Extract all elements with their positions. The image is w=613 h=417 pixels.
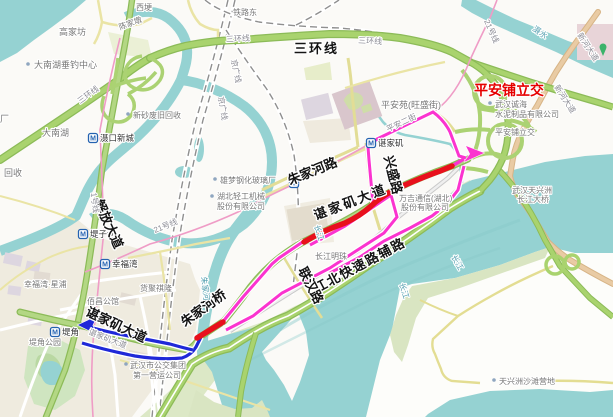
svg-text:高家坊: 高家坊 xyxy=(59,26,86,37)
svg-text:谌家矶: 谌家矶 xyxy=(378,138,404,148)
svg-text:湖北轻工机械: 湖北轻工机械 xyxy=(217,191,265,201)
svg-text:M: M xyxy=(102,262,108,269)
svg-text:大南湖垂钓中心: 大南湖垂钓中心 xyxy=(34,59,97,70)
svg-text:武汉市公交集团: 武汉市公交集团 xyxy=(130,360,186,370)
svg-text:幸福湾·星浦: 幸福湾·星浦 xyxy=(24,279,67,289)
svg-text:平安铺立交: 平安铺立交 xyxy=(495,127,535,137)
svg-text:股份有限公司: 股份有限公司 xyxy=(217,201,265,211)
svg-text:铁路东: 铁路东 xyxy=(233,7,257,17)
svg-text:万吉通信(湖北): 万吉通信(湖北) xyxy=(399,193,453,203)
svg-text:货聚祺隆: 货聚祺隆 xyxy=(140,283,172,293)
svg-text:M: M xyxy=(368,141,374,148)
svg-text:三环线: 三环线 xyxy=(358,35,382,46)
svg-text:新砂废旧回收: 新砂废旧回收 xyxy=(133,110,181,120)
svg-text:回收: 回收 xyxy=(4,167,22,178)
svg-text:西埂: 西埂 xyxy=(136,2,152,12)
svg-text:平安铺立交: 平安铺立交 xyxy=(474,82,544,98)
svg-text:长江明珠: 长江明珠 xyxy=(315,251,347,261)
svg-text:三环线: 三环线 xyxy=(294,41,339,56)
svg-text:厂: 厂 xyxy=(0,114,9,124)
svg-text:堤角公园: 堤角公园 xyxy=(29,337,61,347)
svg-text:水泥制品有限公司: 水泥制品有限公司 xyxy=(495,109,559,119)
svg-text:M: M xyxy=(52,330,58,337)
svg-text:第一营运公司: 第一营运公司 xyxy=(133,370,181,380)
svg-text:平安苑(旺盛街): 平安苑(旺盛街) xyxy=(381,99,441,110)
svg-text:股份有限公司: 股份有限公司 xyxy=(401,202,449,212)
svg-text:幸福湾: 幸福湾 xyxy=(112,259,138,269)
svg-text:佰昌公馆: 佰昌公馆 xyxy=(87,296,119,306)
svg-text:三环线: 三环线 xyxy=(226,33,250,44)
svg-text:雄梦钢化玻璃厂: 雄梦钢化玻璃厂 xyxy=(220,175,276,185)
svg-text:武汉天兴洲: 武汉天兴洲 xyxy=(512,185,552,195)
svg-text:滠口新城: 滠口新城 xyxy=(100,133,135,143)
svg-text:长江大桥: 长江大桥 xyxy=(517,194,549,204)
svg-text:堤角: 堤角 xyxy=(62,327,79,337)
svg-text:武汉诚海: 武汉诚海 xyxy=(495,99,527,109)
svg-text:M: M xyxy=(90,136,96,143)
svg-text:大南湖: 大南湖 xyxy=(42,127,69,138)
svg-text:天兴洲沙滩营地: 天兴洲沙滩营地 xyxy=(499,376,555,386)
svg-text:M: M xyxy=(80,232,86,239)
